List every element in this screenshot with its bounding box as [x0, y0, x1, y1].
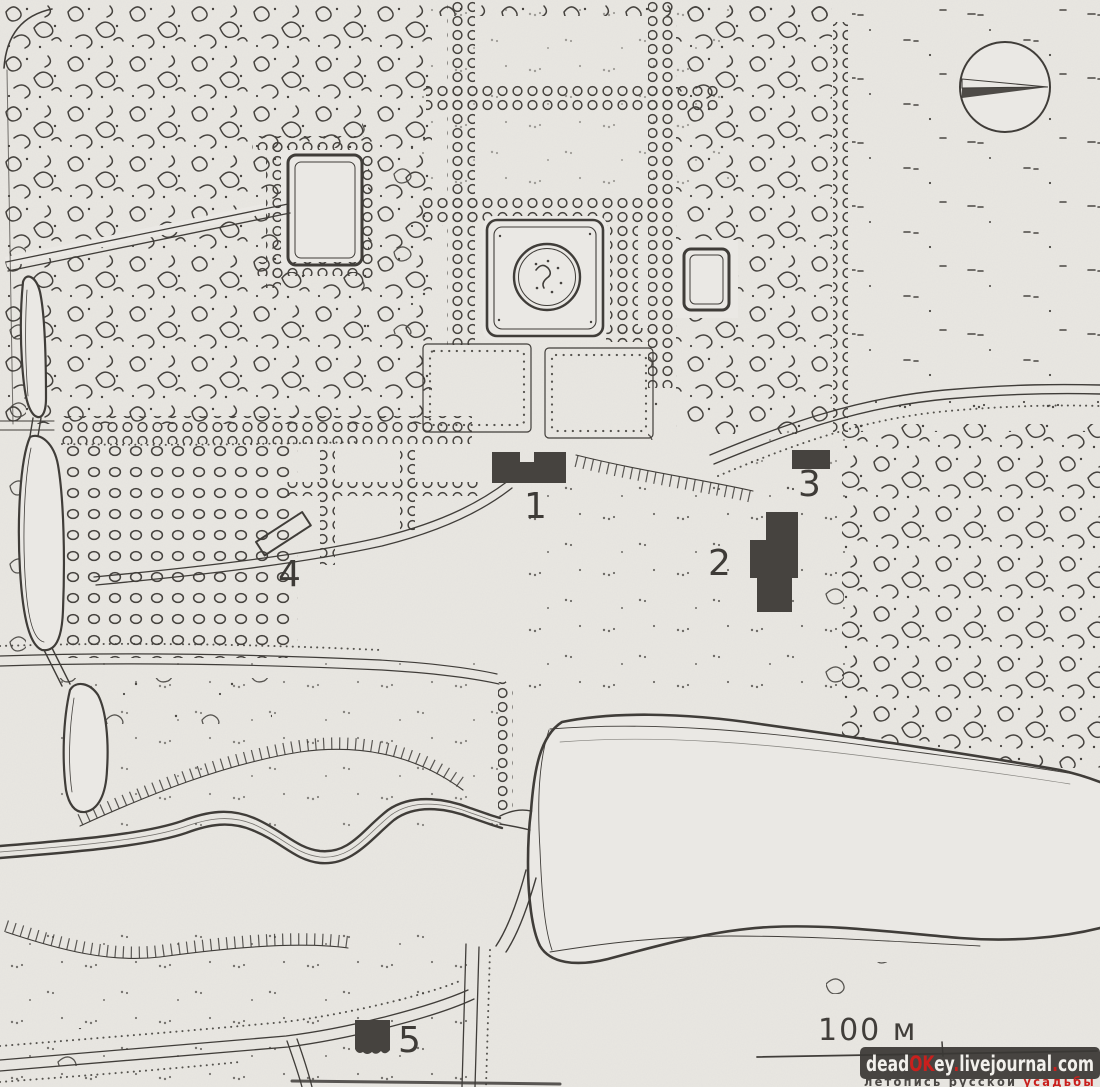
watermark-tagline: летопись русской усадьбы	[864, 1074, 1096, 1087]
estate-plan-map: 1 2 3 4 5 100 м deadOKey.livejournal.com…	[0, 0, 1100, 1087]
building-2-label: 2	[708, 543, 731, 584]
central-parterre	[483, 216, 607, 340]
building-3-label: 3	[798, 464, 821, 505]
scanned-map-page: 1 2 3 4 5 100 м deadOKey.livejournal.com…	[0, 0, 1100, 1087]
building-5	[355, 1020, 390, 1054]
watermark-url: deadOKey.livejournal.com	[866, 1052, 1094, 1076]
building-1-label: 1	[524, 486, 547, 527]
compass-rose-icon	[960, 42, 1050, 132]
watermark: deadOKey.livejournal.com летопись русско…	[860, 1047, 1100, 1087]
building-5-label: 5	[398, 1020, 421, 1061]
scale-label: 100 м	[818, 1013, 917, 1048]
building-4-label: 4	[278, 554, 301, 595]
